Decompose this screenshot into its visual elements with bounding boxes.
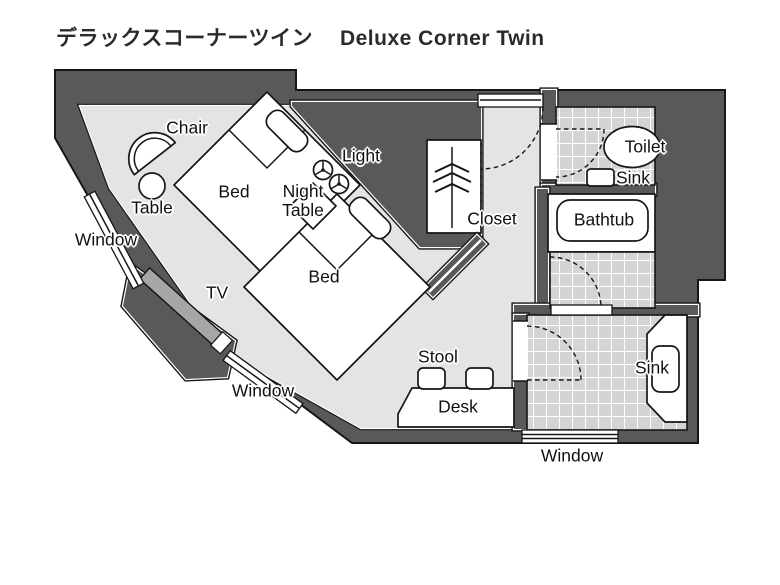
label-toilet-sink: Sink [616, 169, 650, 188]
shower-threshold [551, 305, 612, 315]
label-bed-1: Bed [218, 183, 249, 202]
window-bottom [522, 430, 618, 443]
ceiling-light-icon [330, 175, 349, 194]
ceiling-light-icon [314, 161, 333, 180]
label-window-upper: Window [75, 231, 137, 250]
label-washroom-sink: Sink [635, 359, 669, 378]
label-desk: Desk [438, 398, 478, 417]
label-window-lower: Window [232, 382, 294, 401]
toilet-sink [587, 169, 614, 186]
label-window-bottom: Window [541, 447, 603, 466]
side-table [139, 173, 165, 199]
label-bed-2: Bed [308, 268, 339, 287]
label-chair: Chair [166, 119, 208, 138]
label-table: Table [131, 199, 173, 218]
floor-plan-page: デラックスコーナーツインDeluxe Corner Twin [0, 0, 780, 585]
label-night-table: Night Table [282, 182, 324, 220]
label-toilet: Toilet [625, 138, 666, 157]
label-tv: TV [206, 284, 228, 303]
label-stool: Stool [418, 348, 458, 367]
label-closet: Closet [467, 210, 517, 229]
toilet-door [541, 124, 557, 180]
stool-2 [466, 368, 493, 389]
floor-plan-svg [0, 0, 780, 585]
stool-1 [418, 368, 445, 389]
shower-floor [550, 252, 655, 308]
washroom-door [513, 321, 528, 381]
label-bathtub: Bathtub [574, 211, 634, 230]
label-light: Light [342, 147, 380, 166]
entrance-door [478, 94, 543, 107]
